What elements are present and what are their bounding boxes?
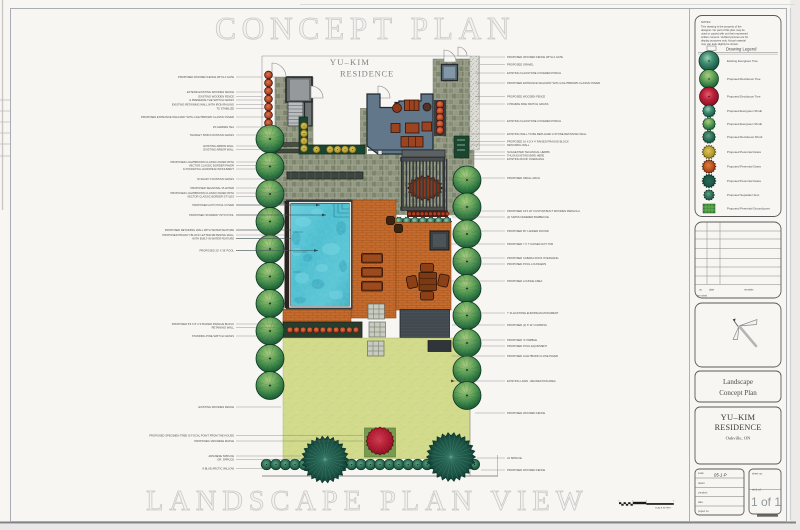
svg-text:This drawing is the property o: This drawing is the property of the: [701, 25, 742, 29]
svg-text:YU–KIM: YU–KIM: [330, 57, 370, 67]
svg-text:RESIDENCE: RESIDENCE: [715, 423, 762, 432]
svg-text:Existing Evergreen Tree: Existing Evergreen Tree: [727, 59, 758, 63]
svg-text:8 BLUE ARCTIC WILLOW: 8 BLUE ARCTIC WILLOW: [202, 467, 234, 471]
svg-text:Proposed Perennial Grass: Proposed Perennial Grass: [727, 150, 761, 154]
svg-text:PROPOSED SMALL ARCH: PROPOSED SMALL ARCH: [507, 176, 540, 180]
svg-text:PROPOSED LIGHTBROWN CLASSIC PA: PROPOSED LIGHTBROWN CLASSIC PAVER WITH: [170, 191, 234, 195]
svg-text:7' FLAGSTONE EUROPEAN MONUMENT: 7' FLAGSTONE EUROPEAN MONUMENT: [507, 311, 559, 315]
svg-text:EXISTING RETAINING WALL WITH I: EXISTING RETAINING WALL WITH IRON RAILIN…: [172, 103, 234, 107]
svg-text:PROPOSED 16 X 8 X 4' RAISED PR: PROPOSED 16 X 8 X 4' RAISED PRAGUE BLOCK: [507, 140, 569, 144]
svg-text:Proposed Deciduous Shrub: Proposed Deciduous Shrub: [727, 135, 763, 139]
svg-text:Proposed Evergreen Shrub: Proposed Evergreen Shrub: [727, 122, 762, 126]
svg-text:RETAINING WALL: RETAINING WALL: [507, 143, 530, 147]
svg-text:W SHADY FOUNTAIN GRASS: W SHADY FOUNTAIN GRASS: [197, 177, 234, 181]
svg-text:EXISTING FLAGSTONE COVERED POR: EXISTING FLAGSTONE COVERED PORCH: [507, 71, 561, 75]
svg-text:PROPOSED JAPANESE MAPLE: PROPOSED JAPANESE MAPLE: [194, 439, 234, 443]
svg-text:Proposed Perennial Grass: Proposed Perennial Grass: [727, 165, 761, 169]
svg-text:YU–KIM: YU–KIM: [721, 412, 756, 422]
svg-text:PROPOSED RETAINING WALL WITH W: PROPOSED RETAINING WALL WITH WATER FEATU…: [165, 228, 234, 232]
svg-text:used or copied with out their: used or copied with out their expressed: [701, 32, 748, 36]
svg-text:PROPOSED WOODEN FENCE: PROPOSED WOODEN FENCE: [507, 95, 545, 99]
svg-text:PROPOSED 7 X 7' RAISED HOT TUB: PROPOSED 7 X 7' RAISED HOT TUB: [507, 242, 553, 246]
svg-text:PROPOSED SPECIMEN TREE IS FOCA: PROPOSED SPECIMEN TREE IS FOCAL POINT FR…: [149, 434, 234, 438]
svg-text:Concept Plan: Concept Plan: [719, 389, 757, 397]
svg-text:(2) SWISS FEDERER BARBECUE: (2) SWISS FEDERER BARBECUE: [507, 215, 549, 219]
svg-text:PROPOSED LIGHTBORD CLOSE PAVER: PROPOSED LIGHTBORD CLOSE PAVER: [507, 354, 558, 358]
svg-text:PROPOSED 5'6 X 8' 2 STACKED PR: PROPOSED 5'6 X 8' 2 STACKED PRAGUE BLOCK: [172, 322, 234, 326]
svg-text:PROPOSED LOUNGE AREA: PROPOSED LOUNGE AREA: [507, 279, 542, 283]
svg-text:PROPOSED WOODEN FENCE WITH A G: PROPOSED WOODEN FENCE WITH A GATE: [507, 55, 563, 59]
svg-text:25 GARDEN TEA: 25 GARDEN TEA: [213, 125, 234, 129]
svg-text:VECTOR CLASSIC BORDER PAVER: VECTOR CLASSIC BORDER PAVER: [189, 164, 234, 168]
svg-text:PROPOSED WOODEN FENCE: PROPOSED WOODEN FENCE: [507, 468, 545, 472]
svg-text:PROPOSED STAIRWAY INTO POOL: PROPOSED STAIRWAY INTO POOL: [189, 213, 234, 217]
svg-text:05-1-P: 05-1-P: [714, 473, 727, 478]
svg-text:designer. No part of this plan: designer. No part of this plan may be: [701, 28, 745, 32]
svg-text:EXISTING ROOF OVERHANG: EXISTING ROOF OVERHANG: [507, 157, 544, 161]
svg-text:RETAINING WALL: RETAINING WALL: [212, 326, 235, 330]
svg-text:scale:: scale:: [698, 472, 705, 475]
svg-text:drawn:: drawn:: [698, 482, 706, 485]
svg-text:checked:: checked:: [698, 492, 708, 495]
svg-text:EXISTING ARBOR WALL: EXISTING ARBOR WALL: [203, 148, 234, 152]
svg-text:PROPOSED 'S' PEBBLE: PROPOSED 'S' PEBBLE: [507, 338, 537, 342]
svg-text:as noted: as noted: [697, 294, 708, 298]
svg-text:PROPOSED GRAVEL: PROPOSED GRAVEL: [507, 63, 534, 67]
svg-text:SCALE IN FEET: SCALE IN FEET: [655, 507, 672, 510]
svg-text:written consent. Verified pict: written consent. Verified pictures are f…: [701, 35, 748, 39]
svg-text:RESIDENCE: RESIDENCE: [340, 69, 394, 79]
svg-text:3 PRAIRIE FIRE SWITCH GRASS: 3 PRAIRIE FIRE SWITCH GRASS: [507, 102, 549, 106]
svg-text:TO STABILIZE: TO STABILIZE: [216, 107, 234, 111]
svg-text:EXISTING ARBOR WALL: EXISTING ARBOR WALL: [203, 144, 234, 148]
svg-text:PROPOSED AUTO POOL COVER: PROPOSED AUTO POOL COVER: [192, 203, 234, 207]
svg-text:PROPOSED PRIVACY BLOCK LETTER: PROPOSED PRIVACY BLOCK LETTER RETAINING …: [162, 233, 234, 237]
svg-text:date: date: [709, 288, 715, 292]
svg-text:EXISTING WOODEN FENCE: EXISTING WOODEN FENCE: [198, 95, 234, 99]
svg-text:JAPANESE SPRUCE: JAPANESE SPRUCE: [208, 454, 234, 458]
svg-text:PROPOSED 16'X 20' CUSTOM BUILT: PROPOSED 16'X 20' CUSTOM BUILT WOODEN PE…: [507, 209, 580, 213]
svg-text:display purposes only. Actual: display purposes only. Actual material: [701, 39, 746, 43]
svg-text:1 of 1: 1 of 1: [751, 495, 781, 509]
svg-text:PROPOSED WOODEN FENCE WITH A G: PROPOSED WOODEN FENCE WITH A GATE: [178, 75, 234, 79]
svg-text:EXISTING WOODEN FENCE: EXISTING WOODEN FENCE: [198, 405, 234, 409]
svg-text:PROPOSED (2) 6' W' COMPASS: PROPOSED (2) 6' W' COMPASS: [507, 323, 547, 327]
svg-text:PROPOSED WOODEN FENCE: PROPOSED WOODEN FENCE: [507, 411, 545, 415]
svg-text:VECTOR CLASSIC BORDER STYLES: VECTOR CLASSIC BORDER STYLES: [187, 195, 234, 199]
svg-text:& POCKETFUL EUROPEAN MONUMENT: & POCKETFUL EUROPEAN MONUMENT: [183, 167, 234, 171]
svg-text:EXISTING WALL TO BE REPLACED A: EXISTING WALL TO BE REPLACED A STONE RET…: [507, 132, 587, 136]
svg-text:NOTES:: NOTES:: [701, 20, 711, 24]
svg-text:SUGGESTED TECHNICAL HERBS: SUGGESTED TECHNICAL HERBS: [507, 150, 550, 154]
svg-text:date:: date:: [698, 501, 704, 504]
svg-text:PROPOSED ENTRANCE WALKWAY WITH: PROPOSED ENTRANCE WALKWAY WITH LIGHTBROW…: [141, 115, 234, 119]
svg-text:DR. SPRUCE: DR. SPRUCE: [217, 458, 234, 462]
svg-text:Proposed Separator Item: Proposed Separator Item: [727, 193, 760, 197]
svg-text:EXISTING FLAGSTONE COVERED POR: EXISTING FLAGSTONE COVERED PORCH: [507, 119, 561, 123]
svg-text:Proposed Evergreen Shrub: Proposed Evergreen Shrub: [727, 109, 762, 113]
svg-text:WITH BUILT-IN WATER FEATURE: WITH BUILT-IN WATER FEATURE: [192, 237, 234, 241]
svg-text:EXISTING LAWN - RECREATION ARE: EXISTING LAWN - RECREATION AREA: [507, 379, 556, 383]
svg-text:Proposed Perennial Grass: Proposed Perennial Grass: [727, 179, 761, 183]
svg-text:PROPOSED BY LADDER ROUND: PROPOSED BY LADDER ROUND: [507, 229, 549, 233]
svg-text:24 SPRUCE: 24 SPRUCE: [507, 456, 522, 460]
svg-text:PROPOSED ENTRANCE WALKWAY WITH: PROPOSED ENTRANCE WALKWAY WITH LIGHTBROW…: [507, 81, 600, 85]
svg-text:STANDING PINE SWITCH GRASS: STANDING PINE SWITCH GRASS: [192, 334, 234, 338]
svg-text:project no:: project no:: [698, 510, 709, 513]
svg-text:Proposed Deciduous Tree: Proposed Deciduous Tree: [727, 95, 761, 99]
svg-text:PROPOSED 20' X 36' POOL: PROPOSED 20' X 36' POOL: [200, 249, 235, 253]
svg-text:sht 1 of:: sht 1 of:: [752, 488, 762, 492]
svg-text:THURLEY 50/50 FOUNTAIN GRASS: THURLEY 50/50 FOUNTAIN GRASS: [190, 133, 235, 137]
svg-text:PROPOSED POOL LOUNGERS: PROPOSED POOL LOUNGERS: [507, 262, 546, 266]
svg-text:Proposed Perennial Groundcover: Proposed Perennial Groundcover: [727, 207, 770, 211]
svg-text:remarks: remarks: [744, 288, 754, 292]
svg-text:PROPOSED SEASONAL PLANTER: PROPOSED SEASONAL PLANTER: [190, 186, 234, 190]
svg-text:Drawing Legend: Drawing Legend: [726, 46, 757, 51]
svg-text:PROPOSED POOL EQUIPMENT: PROPOSED POOL EQUIPMENT: [507, 344, 547, 348]
svg-text:LANDSCAPE PLAN VIEW: LANDSCAPE PLAN VIEW: [146, 486, 589, 517]
svg-text:Landscape: Landscape: [723, 378, 753, 386]
svg-text:THUJA EXISTING BIRD HERE: THUJA EXISTING BIRD HERE: [507, 154, 544, 158]
svg-text:CONCEPT PLAN: CONCEPT PLAN: [215, 11, 515, 46]
svg-text:Proposed Deciduous Tree: Proposed Deciduous Tree: [727, 77, 761, 81]
svg-text:sheet no:: sheet no:: [752, 472, 763, 476]
svg-text:& PRESERVE THE SWITCH GRASS: & PRESERVE THE SWITCH GRASS: [189, 98, 234, 102]
svg-text:PROPOSED LIGHTBROWN CLASSIC PA: PROPOSED LIGHTBROWN CLASSIC PAVER WITH: [170, 160, 234, 164]
svg-text:PROPOSED CABANA ROOF OVERHANG: PROPOSED CABANA ROOF OVERHANG: [507, 256, 559, 260]
svg-text:EXTEND EXISTING WOODEN FENCE: EXTEND EXISTING WOODEN FENCE: [187, 90, 234, 94]
